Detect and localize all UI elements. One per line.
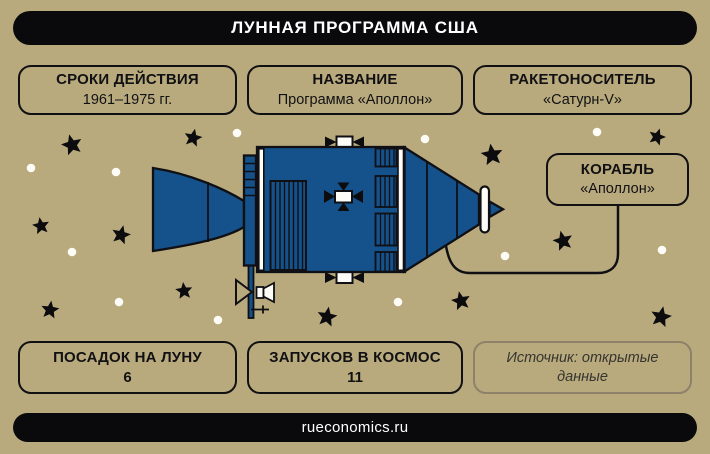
white-dot — [501, 252, 510, 261]
info-box-launches: ЗАПУСКОВ В КОСМОС 11 — [247, 341, 463, 394]
infographic-page: ЛУННАЯ ПРОГРАММА США СРОКИ ДЕЙСТВИЯ 1961… — [0, 0, 710, 454]
info-box-landings: ПОСАДОК НА ЛУНУ 6 — [18, 341, 237, 394]
box-value: 11 — [347, 368, 363, 388]
spacecraft — [153, 137, 503, 319]
box-label: НАЗВАНИЕ — [312, 70, 397, 90]
white-dot — [394, 298, 403, 307]
white-dot — [68, 248, 77, 257]
box-value: «Аполлон» — [580, 180, 655, 199]
info-box-rocket: РАКЕТОНОСИТЕЛЬ «Сатурн-V» — [473, 65, 692, 115]
page-title: ЛУННАЯ ПРОГРАММА США — [231, 18, 479, 38]
box-label: ЗАПУСКОВ В КОСМОС — [269, 348, 441, 368]
star-icon — [175, 281, 194, 299]
footer-site: rueconomics.ru — [302, 419, 409, 436]
white-dot — [593, 128, 602, 137]
star-icon — [110, 223, 133, 245]
white-dot — [233, 129, 242, 138]
star-icon — [31, 216, 51, 235]
star-icon — [450, 289, 472, 311]
box-value: «Сатурн-V» — [543, 91, 622, 110]
footer-bar: rueconomics.ru — [13, 413, 697, 442]
star-icon — [183, 127, 204, 148]
white-dot — [115, 298, 124, 307]
star-icon — [40, 299, 60, 319]
box-label: РАКЕТОНОСИТЕЛЬ — [509, 70, 656, 90]
box-label: КОРАБЛЬ — [581, 160, 654, 180]
info-box-duration: СРОКИ ДЕЙСТВИЯ 1961–1975 гг. — [18, 65, 237, 115]
star-icon — [647, 126, 668, 147]
box-value: 6 — [123, 368, 131, 388]
source-text: Источник: открытые данные — [495, 349, 670, 387]
white-dot — [214, 316, 223, 325]
white-dot — [421, 135, 430, 144]
interstage-section — [244, 156, 256, 266]
info-box-ship: КОРАБЛЬ «Аполлон» — [546, 153, 689, 206]
star-icon — [480, 142, 505, 166]
command-module — [405, 148, 480, 272]
box-label: СРОКИ ДЕЙСТВИЯ — [56, 70, 199, 90]
white-dot — [27, 164, 36, 173]
info-box-name: НАЗВАНИЕ Программа «Аполлон» — [247, 65, 463, 115]
engine-nozzle-icon — [153, 168, 244, 251]
star-icon — [59, 132, 84, 157]
box-label: ПОСАДОК НА ЛУНУ — [53, 348, 202, 368]
docking-probe — [481, 187, 504, 233]
rcs-thruster-bottom — [325, 272, 364, 283]
star-icon — [316, 305, 339, 327]
white-dot — [112, 168, 121, 177]
box-value: Программа «Аполлон» — [278, 91, 433, 110]
white-dot — [658, 246, 667, 255]
star-icon — [551, 228, 575, 251]
header-bar: ЛУННАЯ ПРОГРАММА США — [13, 11, 697, 45]
box-value: 1961–1975 гг. — [83, 91, 172, 110]
source-box: Источник: открытые данные — [473, 341, 692, 394]
star-icon — [649, 304, 674, 328]
